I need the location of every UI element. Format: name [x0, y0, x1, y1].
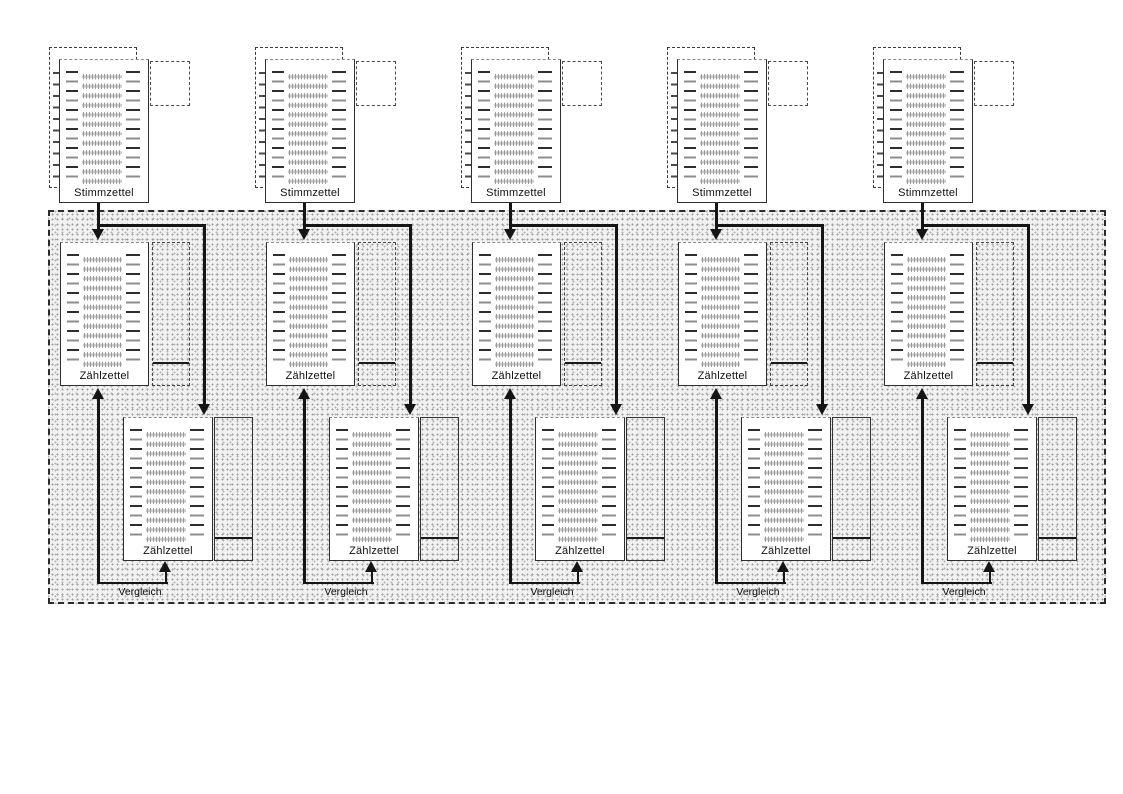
- arrowhead-up-icon: [777, 561, 789, 572]
- zaehlzettel-bottom-document: Zählzettel: [535, 417, 625, 561]
- zaehlzettel-bottom-label: Zählzettel: [742, 545, 830, 557]
- vergleich-connector-bottom: [509, 582, 580, 585]
- tally-marks-column: [420, 417, 459, 561]
- zaehlzettel-top-label: Zählzettel: [885, 370, 972, 382]
- tally-station-column: Stimmzettel Zählzettel: [265, 45, 465, 601]
- branch-connector-vertical: [409, 224, 412, 405]
- ruled-line-middle: [352, 429, 392, 543]
- vergleich-connector-left: [303, 399, 306, 583]
- stimmzettel-front-page: Stimmzettel: [265, 59, 355, 203]
- ruled-line-left: [272, 71, 284, 185]
- arrowhead-down-icon: [404, 404, 416, 415]
- document-text-lines: [891, 254, 964, 368]
- ruled-line-right: [332, 254, 346, 368]
- arrowhead-up-icon: [298, 388, 310, 399]
- arrowhead-down-icon: [916, 229, 928, 240]
- stimmzettel-label: Stimmzettel: [60, 187, 148, 199]
- ruled-line-middle: [970, 429, 1010, 543]
- arrowhead-up-icon: [916, 388, 928, 399]
- vergleich-connector-right: [577, 571, 580, 584]
- arrowhead-down-icon: [710, 229, 722, 240]
- arrowhead-up-icon: [983, 561, 995, 572]
- arrowhead-down-icon: [198, 404, 210, 415]
- tally-marks-column: [832, 417, 871, 561]
- ruled-line-left: [542, 429, 554, 543]
- ruled-line-right: [744, 254, 758, 368]
- zaehlzettel-top-label: Zählzettel: [473, 370, 560, 382]
- stimmzettel-label: Stimmzettel: [266, 187, 354, 199]
- ruled-line-middle: [288, 71, 328, 185]
- zaehlzettel-top-label: Zählzettel: [61, 370, 148, 382]
- vergleich-connector-bottom: [97, 582, 168, 585]
- ruled-line-right: [950, 71, 964, 185]
- branch-connector-vertical: [203, 224, 206, 405]
- arrowhead-up-icon: [159, 561, 171, 572]
- ruled-line-right: [808, 429, 822, 543]
- branch-connector-horizontal: [97, 224, 206, 227]
- vergleich-connector-right: [989, 571, 992, 584]
- ruled-line-right: [190, 429, 204, 543]
- stimmzettel-front-page: Stimmzettel: [883, 59, 973, 203]
- arrowhead-down-icon: [298, 229, 310, 240]
- document-text-lines: [478, 71, 552, 185]
- ruled-line-middle: [146, 429, 186, 543]
- ruled-line-right: [602, 429, 616, 543]
- document-text-lines: [66, 71, 140, 185]
- ruled-line-right: [538, 71, 552, 185]
- ruled-line-right: [126, 254, 140, 368]
- document-text-lines: [336, 429, 410, 543]
- stimmzettel-label: Stimmzettel: [678, 187, 766, 199]
- branch-connector-vertical: [1027, 224, 1030, 405]
- document-text-lines: [542, 429, 616, 543]
- stimmzettel-front-page: Stimmzettel: [471, 59, 561, 203]
- arrowhead-up-icon: [571, 561, 583, 572]
- ruled-line-middle: [907, 254, 946, 368]
- tally-sum-box: [627, 537, 664, 560]
- tally-marks-column: [1038, 417, 1077, 561]
- document-text-lines: [273, 254, 346, 368]
- ruled-line-left: [954, 429, 966, 543]
- arrowhead-down-icon: [610, 404, 622, 415]
- vergleich-label: Vergleich: [305, 586, 387, 598]
- arrowhead-down-icon: [816, 404, 828, 415]
- branch-connector-vertical: [615, 224, 618, 405]
- tally-sum-box: [565, 362, 601, 385]
- tally-sum-box: [977, 362, 1013, 385]
- ruled-line-middle: [495, 254, 534, 368]
- vergleich-connector-right: [371, 571, 374, 584]
- vergleich-connector-right: [783, 571, 786, 584]
- branch-connector-vertical: [821, 224, 824, 405]
- vergleich-connector-left: [715, 399, 718, 583]
- ruled-line-middle: [701, 254, 740, 368]
- tally-sum-box: [421, 537, 458, 560]
- ruled-line-left: [130, 429, 142, 543]
- ruled-line-right: [332, 71, 346, 185]
- vergleich-label: Vergleich: [99, 586, 181, 598]
- document-text-lines: [67, 254, 140, 368]
- zaehlzettel-bottom-document: Zählzettel: [741, 417, 831, 561]
- vergleich-label: Vergleich: [511, 586, 593, 598]
- zaehlzettel-top-document: Zählzettel: [884, 242, 973, 386]
- tally-sum-box: [771, 362, 807, 385]
- document-text-lines: [954, 429, 1028, 543]
- zaehlzettel-bottom-document: Zählzettel: [947, 417, 1037, 561]
- ruled-line-right: [126, 71, 140, 185]
- arrowhead-up-icon: [504, 388, 516, 399]
- ruled-line-left: [685, 254, 697, 368]
- document-text-lines: [130, 429, 204, 543]
- ruled-line-middle: [494, 71, 534, 185]
- zaehlzettel-top-label: Zählzettel: [267, 370, 354, 382]
- branch-connector-horizontal: [509, 224, 618, 227]
- ruled-line-right: [396, 429, 410, 543]
- vergleich-connector-left: [921, 399, 924, 583]
- vergleich-connector-left: [97, 399, 100, 583]
- zaehlzettel-bottom-label: Zählzettel: [124, 545, 212, 557]
- vergleich-connector-bottom: [715, 582, 786, 585]
- arrowhead-down-icon: [92, 229, 104, 240]
- ruled-line-middle: [906, 71, 946, 185]
- tally-marks-column: [214, 417, 253, 561]
- ruled-line-middle: [289, 254, 328, 368]
- document-text-lines: [684, 71, 758, 185]
- ruled-line-right: [950, 254, 964, 368]
- arrowhead-down-icon: [1022, 404, 1034, 415]
- ruled-line-middle: [764, 429, 804, 543]
- zaehlzettel-bottom-document: Zählzettel: [329, 417, 419, 561]
- stimmzettel-label: Stimmzettel: [884, 187, 972, 199]
- document-text-lines: [272, 71, 346, 185]
- ruled-line-left: [66, 71, 78, 185]
- ruled-line-left: [273, 254, 285, 368]
- tally-sum-box: [215, 537, 252, 560]
- zaehlzettel-bottom-label: Zählzettel: [536, 545, 624, 557]
- ruled-line-left: [890, 71, 902, 185]
- ruled-line-left: [479, 254, 491, 368]
- zaehlzettel-top-document: Zählzettel: [472, 242, 561, 386]
- vergleich-connector-bottom: [303, 582, 374, 585]
- blank-slip: [768, 61, 808, 106]
- branch-connector-horizontal: [715, 224, 824, 227]
- ruled-line-middle: [83, 254, 122, 368]
- tally-sum-box: [1039, 537, 1076, 560]
- stimmzettel-front-page: Stimmzettel: [59, 59, 149, 203]
- ruled-line-middle: [82, 71, 122, 185]
- tally-marks-column: [626, 417, 665, 561]
- ruled-line-right: [1014, 429, 1028, 543]
- tally-station-column: Stimmzettel Zählzettel: [471, 45, 671, 601]
- tally-sum-box: [833, 537, 870, 560]
- vergleich-connector-left: [509, 399, 512, 583]
- ruled-line-left: [478, 71, 490, 185]
- tally-station-column: Stimmzettel Zählzettel: [677, 45, 877, 601]
- tally-marks-column: [358, 242, 396, 386]
- blank-slip: [356, 61, 396, 106]
- zaehlzettel-top-document: Zählzettel: [266, 242, 355, 386]
- tally-station-column: Stimmzettel Zählzettel: [883, 45, 1083, 601]
- ruled-line-middle: [700, 71, 740, 185]
- ruled-line-left: [891, 254, 903, 368]
- arrowhead-up-icon: [710, 388, 722, 399]
- stimmzettel-label: Stimmzettel: [472, 187, 560, 199]
- zaehlzettel-top-document: Zählzettel: [678, 242, 767, 386]
- ruled-line-left: [67, 254, 79, 368]
- document-text-lines: [479, 254, 552, 368]
- zaehlzettel-bottom-document: Zählzettel: [123, 417, 213, 561]
- vergleich-label: Vergleich: [923, 586, 1005, 598]
- tally-marks-column: [770, 242, 808, 386]
- tally-marks-column: [152, 242, 190, 386]
- zaehlzettel-bottom-label: Zählzettel: [330, 545, 418, 557]
- vergleich-label: Vergleich: [717, 586, 799, 598]
- blank-slip: [562, 61, 602, 106]
- ruled-line-middle: [558, 429, 598, 543]
- blank-slip: [150, 61, 190, 106]
- arrowhead-up-icon: [365, 561, 377, 572]
- ruled-line-left: [748, 429, 760, 543]
- branch-connector-horizontal: [921, 224, 1030, 227]
- ruled-line-left: [684, 71, 696, 185]
- ruled-line-right: [538, 254, 552, 368]
- document-text-lines: [685, 254, 758, 368]
- tally-sum-box: [153, 362, 189, 385]
- vergleich-connector-bottom: [921, 582, 992, 585]
- ruled-line-left: [336, 429, 348, 543]
- tally-marks-column: [976, 242, 1014, 386]
- tally-station-column: Stimmzettel Zählzettel: [59, 45, 259, 601]
- tally-sum-box: [359, 362, 395, 385]
- ruled-line-right: [744, 71, 758, 185]
- tally-marks-column: [564, 242, 602, 386]
- document-text-lines: [748, 429, 822, 543]
- arrowhead-down-icon: [504, 229, 516, 240]
- zaehlzettel-bottom-label: Zählzettel: [948, 545, 1036, 557]
- ballot-tally-diagram: Stimmzettel Zählzettel: [0, 0, 1123, 794]
- document-text-lines: [890, 71, 964, 185]
- vergleich-connector-right: [165, 571, 168, 584]
- blank-slip: [974, 61, 1014, 106]
- zaehlzettel-top-document: Zählzettel: [60, 242, 149, 386]
- arrowhead-up-icon: [92, 388, 104, 399]
- zaehlzettel-top-label: Zählzettel: [679, 370, 766, 382]
- stimmzettel-front-page: Stimmzettel: [677, 59, 767, 203]
- branch-connector-horizontal: [303, 224, 412, 227]
